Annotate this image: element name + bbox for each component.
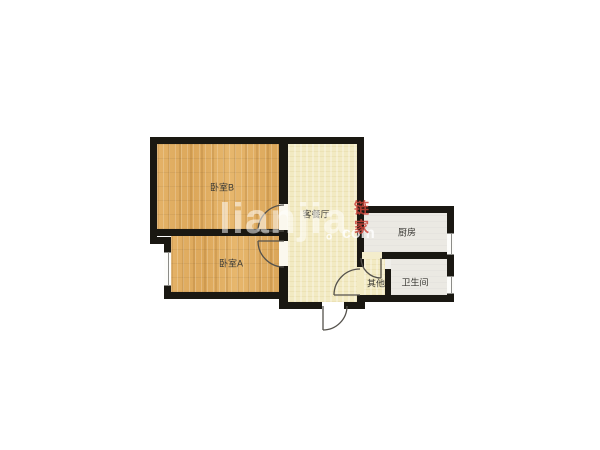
door-arc-entrance — [323, 306, 347, 330]
door-arc-kitchen — [361, 258, 381, 278]
lianjia-logo: 链家 — [354, 199, 371, 237]
door-arc-other — [334, 269, 360, 295]
floorplan-canvas: 卧室B 卧室A 客餐厅 厨房 卫生间 其他 lianjia 。com 链家 — [0, 0, 600, 450]
door-arc-bedroom-a — [258, 241, 284, 267]
